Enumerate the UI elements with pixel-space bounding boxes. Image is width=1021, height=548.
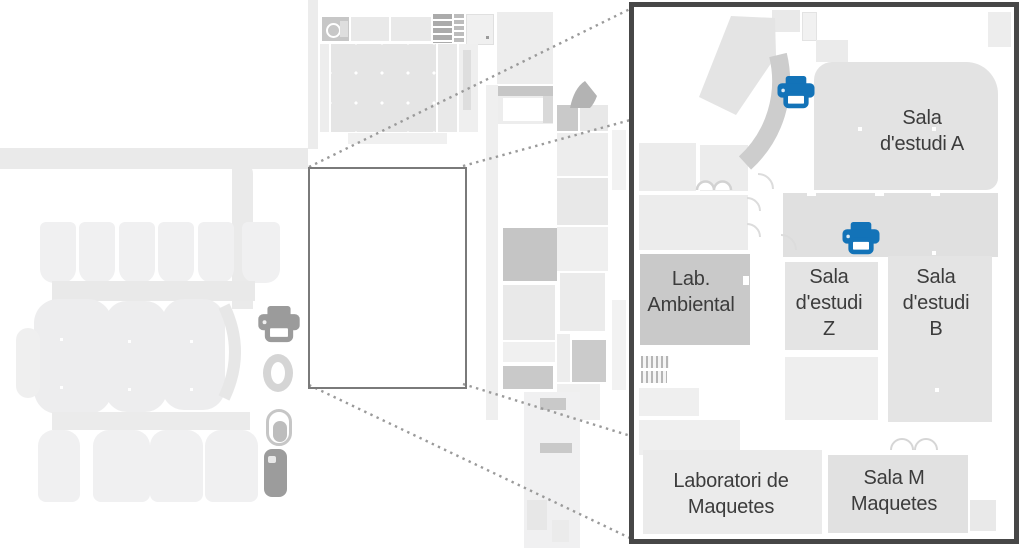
printer-icon	[777, 76, 815, 109]
stairs-icon	[641, 356, 669, 368]
hall-crescent	[224, 306, 235, 398]
printer-icon	[842, 222, 880, 255]
room-label-sala-destudi-b: Salad'estudiB	[903, 264, 970, 342]
room-label-sala-destudi-z: Salad'estudiZ	[796, 264, 863, 342]
detail-map: Salad'estudi A Lab.Ambiental Salad'estud…	[635, 8, 1013, 538]
double-door-arcs	[697, 182, 731, 191]
door-swing-arcs	[891, 439, 937, 450]
room-label-lab-ambiental: Lab.Ambiental	[647, 266, 734, 318]
stairs-icon	[641, 371, 667, 383]
angled-room	[699, 16, 776, 115]
sail-block	[570, 81, 597, 108]
room-label-sala-m-maquetes: Sala MMaquetes	[851, 465, 937, 517]
room-label-laboratori-maquetes: Laboratori deMaquetes	[673, 468, 788, 520]
highlight-rectangle	[308, 167, 467, 389]
room-label-sala-destudi-a: Salad'estudi A	[880, 105, 964, 157]
campus-map-figure: Salad'estudi A Lab.Ambiental Salad'estud…	[0, 0, 1021, 548]
